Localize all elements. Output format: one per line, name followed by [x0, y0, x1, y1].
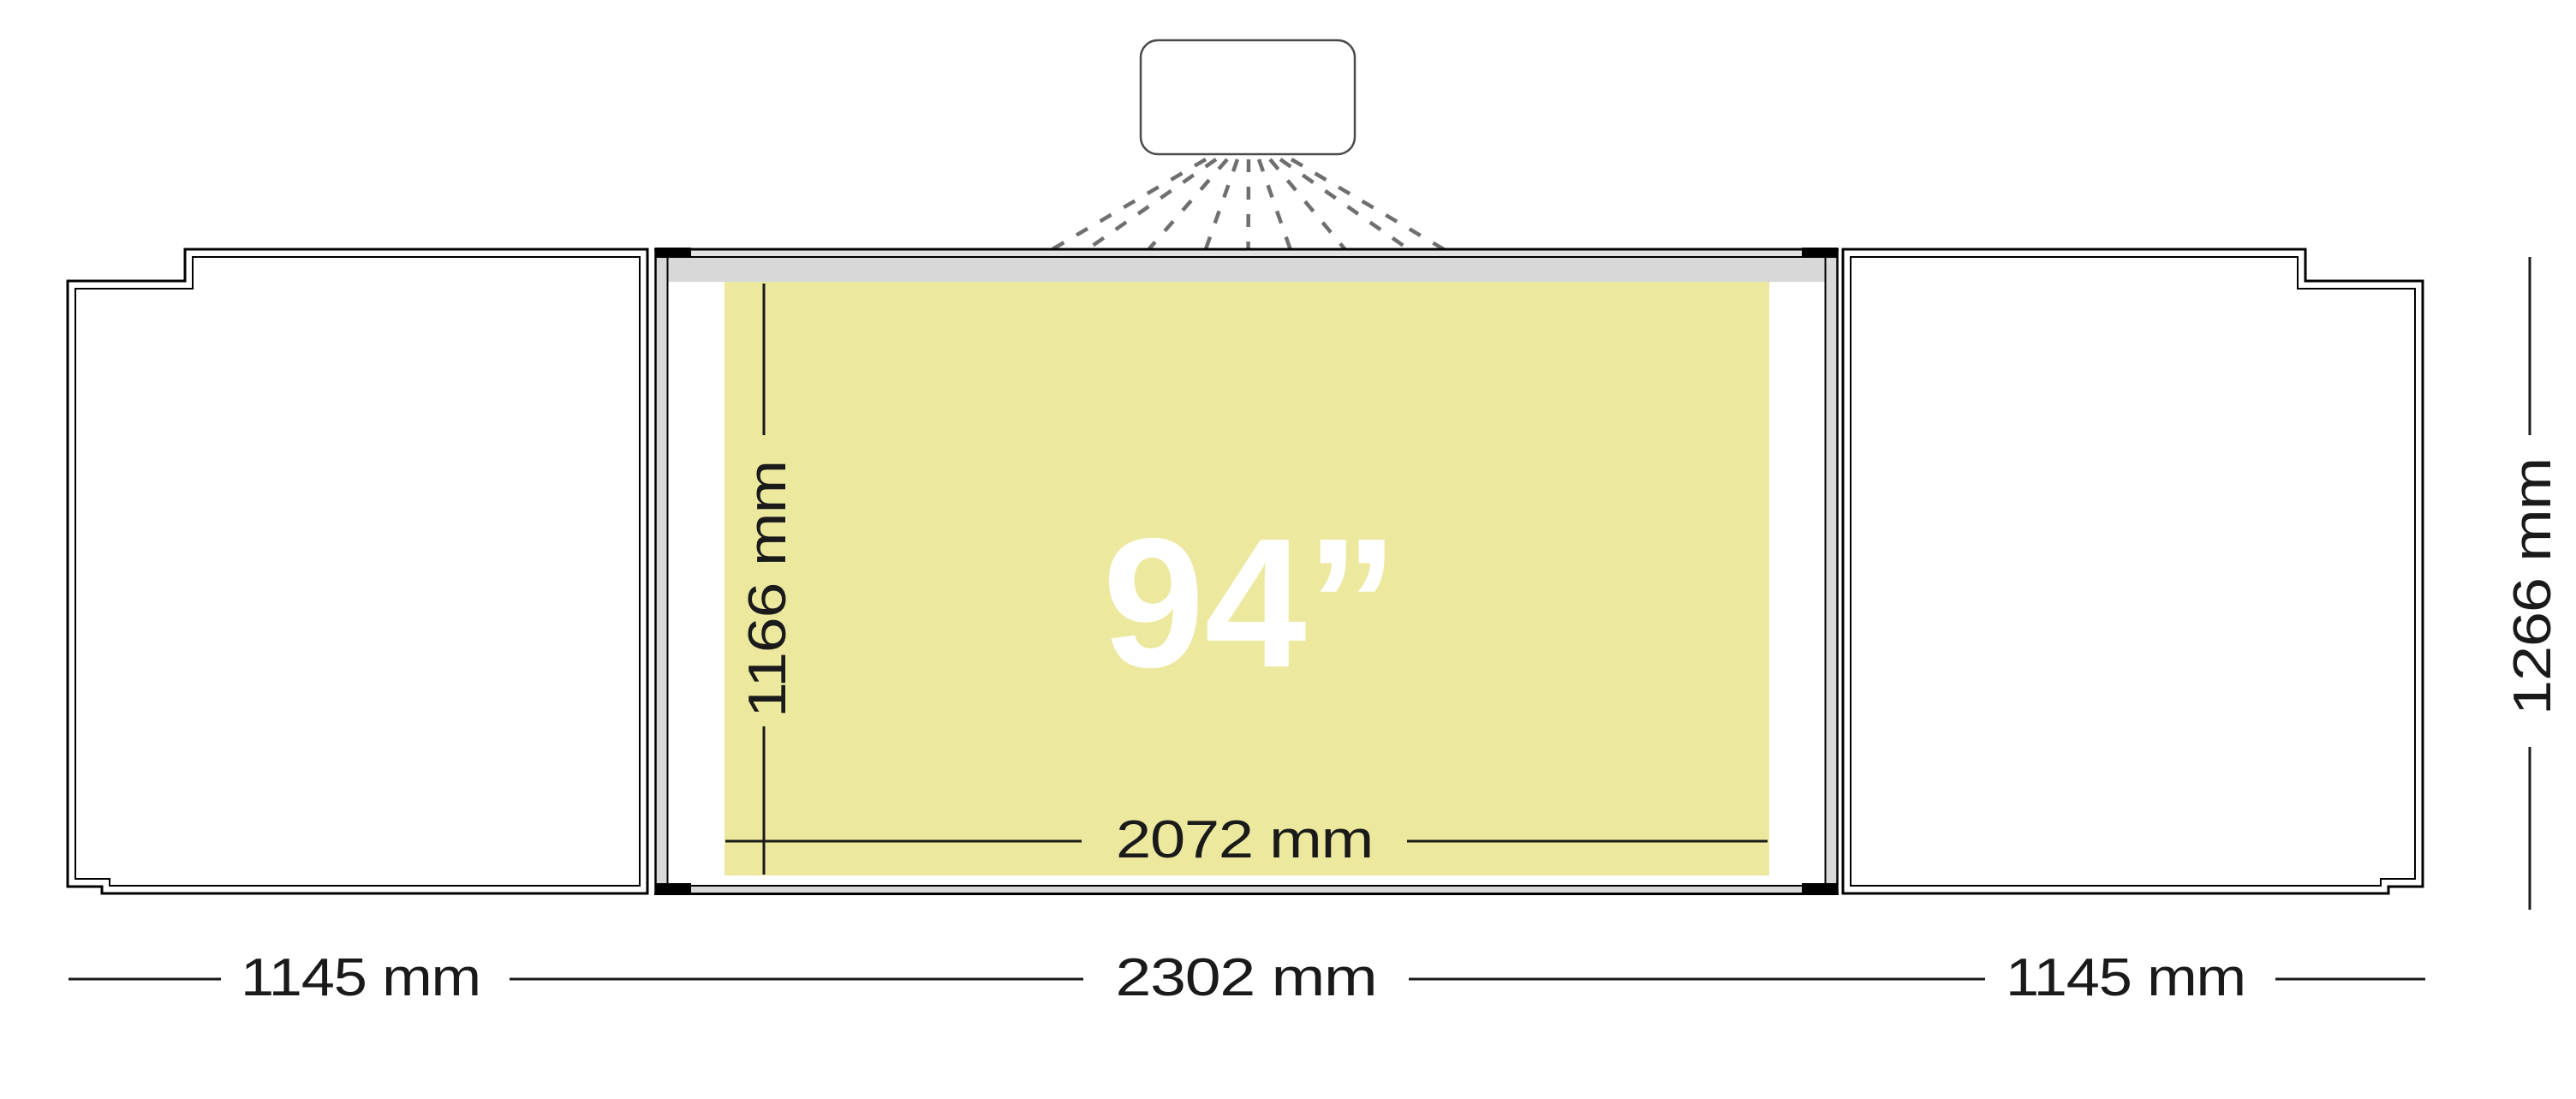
left-wing-inner-outline	[75, 257, 640, 886]
projection-diagonal-label: 94”	[1103, 499, 1398, 706]
bottom-left-bracket	[655, 883, 691, 894]
left-rail-bar	[656, 250, 667, 893]
right-wing-outer-outline	[1843, 249, 2423, 893]
top-thin-rail	[691, 251, 1802, 257]
bottom-right-bracket	[1802, 883, 1838, 894]
right-rail-bar	[1826, 250, 1837, 893]
board-height-label: 1266 mm	[2503, 458, 2562, 715]
top-left-bracket	[655, 248, 691, 258]
projector-icon	[1141, 40, 1355, 154]
center-board: 94”	[654, 248, 1839, 894]
left-wing-panel	[68, 249, 647, 893]
whiteboard-dimension-diagram: 94” 1166 mm 2072 mm 1145 mm 2302 mm 1145…	[0, 0, 2576, 1099]
left-wing-outer-outline	[68, 249, 647, 893]
right-wing-inner-outline	[1851, 257, 2415, 886]
top-right-bracket	[1802, 248, 1838, 258]
top-rail-bar	[668, 258, 1825, 282]
projection-width-label: 2072 mm	[1116, 810, 1373, 869]
left-wing-width-label: 1145 mm	[241, 948, 480, 1007]
bottom-tray-bar	[691, 887, 1802, 893]
board-width-label: 2302 mm	[1116, 948, 1377, 1007]
right-wing-panel	[1843, 249, 2423, 893]
right-wing-width-label: 1145 mm	[2006, 948, 2245, 1007]
projection-height-label: 1166 mm	[738, 461, 797, 718]
diagram-stage: 94” 1166 mm 2072 mm 1145 mm 2302 mm 1145…	[0, 0, 2576, 1099]
